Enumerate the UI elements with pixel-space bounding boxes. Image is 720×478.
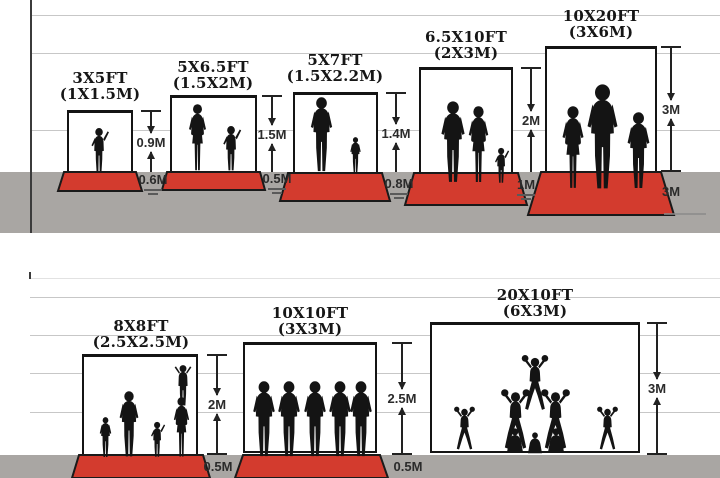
floor-depth-label: 1M [517,177,535,192]
size-label-ft: 10X20FT [541,8,661,24]
title-5x7ft: 5X7FT (1.5X2.2M) [275,52,395,84]
wall-height-dimension: 0.9M [140,110,162,172]
wall-height-dimension: 1.4M [385,92,407,172]
floor-depth-dimension: 0.6M [131,172,175,195]
floor-depth-dimension: 0.5M [386,459,430,474]
man-silhouette [278,381,300,456]
wall-height-dimension: 2.5M [391,342,413,455]
floor-depth-dimension: 1M [504,177,548,200]
size-label-m: (2.5X2.5M) [81,334,201,350]
red-floor-mat [162,172,265,190]
title-3x5ft: 3X5FT (1X1.5M) [40,70,160,102]
wall-height-label: 2M [208,397,226,412]
wall-height-dimension: 3M [660,46,682,172]
floor-depth-label: 3M [662,184,680,199]
kneeling-silhouette [528,432,542,453]
man-silhouette [329,381,351,456]
title-8x8ft: 8X8FT (2.5X2.5M) [81,318,201,350]
man-silhouette [120,391,139,456]
backdrop-size-comparison-diagram: 3X5FT (1X1.5M) 5X6.5FT (1.5X2M) 5X7FT (1… [0,0,720,478]
size-label-m: (3X6M) [541,24,661,40]
girl-silhouette [151,422,165,457]
boy-silhouette [100,417,111,457]
wall-height-dimension: 1.5M [261,95,283,172]
floor-depth-label: 0.6M [139,172,168,187]
size-label-ft: 8X8FT [81,318,201,334]
child-silhouette [223,126,241,170]
woman-silhouette [174,397,189,456]
size-label-ft: 6.5X10FT [406,29,526,45]
wall-height-label: 2.5M [388,391,417,406]
cheerleader-silhouette [454,407,475,450]
title-6-5x10ft: 6.5X10FT (2X3M) [406,29,526,61]
size-label-ft: 5X6.5FT [153,59,273,75]
woman-silhouette [189,104,206,170]
cheerleader-flyer-silhouette [522,355,549,410]
size-label-ft: 3X5FT [40,70,160,86]
title-5x6-5ft: 5X6.5FT (1.5X2M) [153,59,273,91]
floor-depth-label: 0.5M [263,171,292,186]
size-label-ft: 10X10FT [250,305,370,321]
size-label-ft: 5X7FT [275,52,395,68]
floor-depth-dimension: 0.8M [377,176,421,199]
wall-height-label: 0.9M [137,135,166,150]
wall-height-label: 1.4M [382,126,411,141]
floor-depth-label: 0.5M [204,459,233,474]
size-label-m: (6X3M) [475,303,595,319]
floor-depth-label: 0.5M [394,459,423,474]
title-10x10ft: 10X10FT (3X3M) [250,305,370,337]
wall-height-label: 2M [522,113,540,128]
red-floor-mat [58,172,142,191]
size-label-m: (2X3M) [406,45,526,61]
man-silhouette [350,381,372,456]
title-20x10ft: 20X10FT (6X3M) [475,287,595,319]
floor-depth-dimension: 3M [649,184,693,199]
red-floor-mat [72,455,210,478]
title-10x20ft: 10X20FT (3X6M) [541,8,661,40]
size-label-ft: 20X10FT [475,287,595,303]
silhouettes [91,84,649,457]
floor-depth-dimension: 0.5M [196,459,240,474]
wall-height-dimension: 2M [206,354,228,455]
size-label-m: (1.5X2.2M) [275,68,395,84]
man-silhouette [311,97,332,171]
woman-silhouette [469,106,489,182]
wall-height-dimension: 3M [646,322,668,455]
size-label-m: (3X3M) [250,321,370,337]
man-silhouette [441,101,464,182]
wall-height-label: 3M [648,381,666,396]
wall-height-label: 3M [662,102,680,117]
floor-depth-dimension: 0.5M [255,171,299,194]
wall-height-dimension: 2M [520,67,542,172]
wall-height-label: 1.5M [258,127,287,142]
cheerleader-silhouette [597,407,618,450]
man-silhouette [304,381,326,456]
boy-silhouette [350,137,360,173]
size-label-m: (1.5X2M) [153,75,273,91]
floor-depth-label: 0.8M [385,176,414,191]
red-floor-mat [235,455,388,478]
size-label-m: (1X1.5M) [40,86,160,102]
man-silhouette [253,381,275,456]
toddler-silhouette [91,128,109,171]
